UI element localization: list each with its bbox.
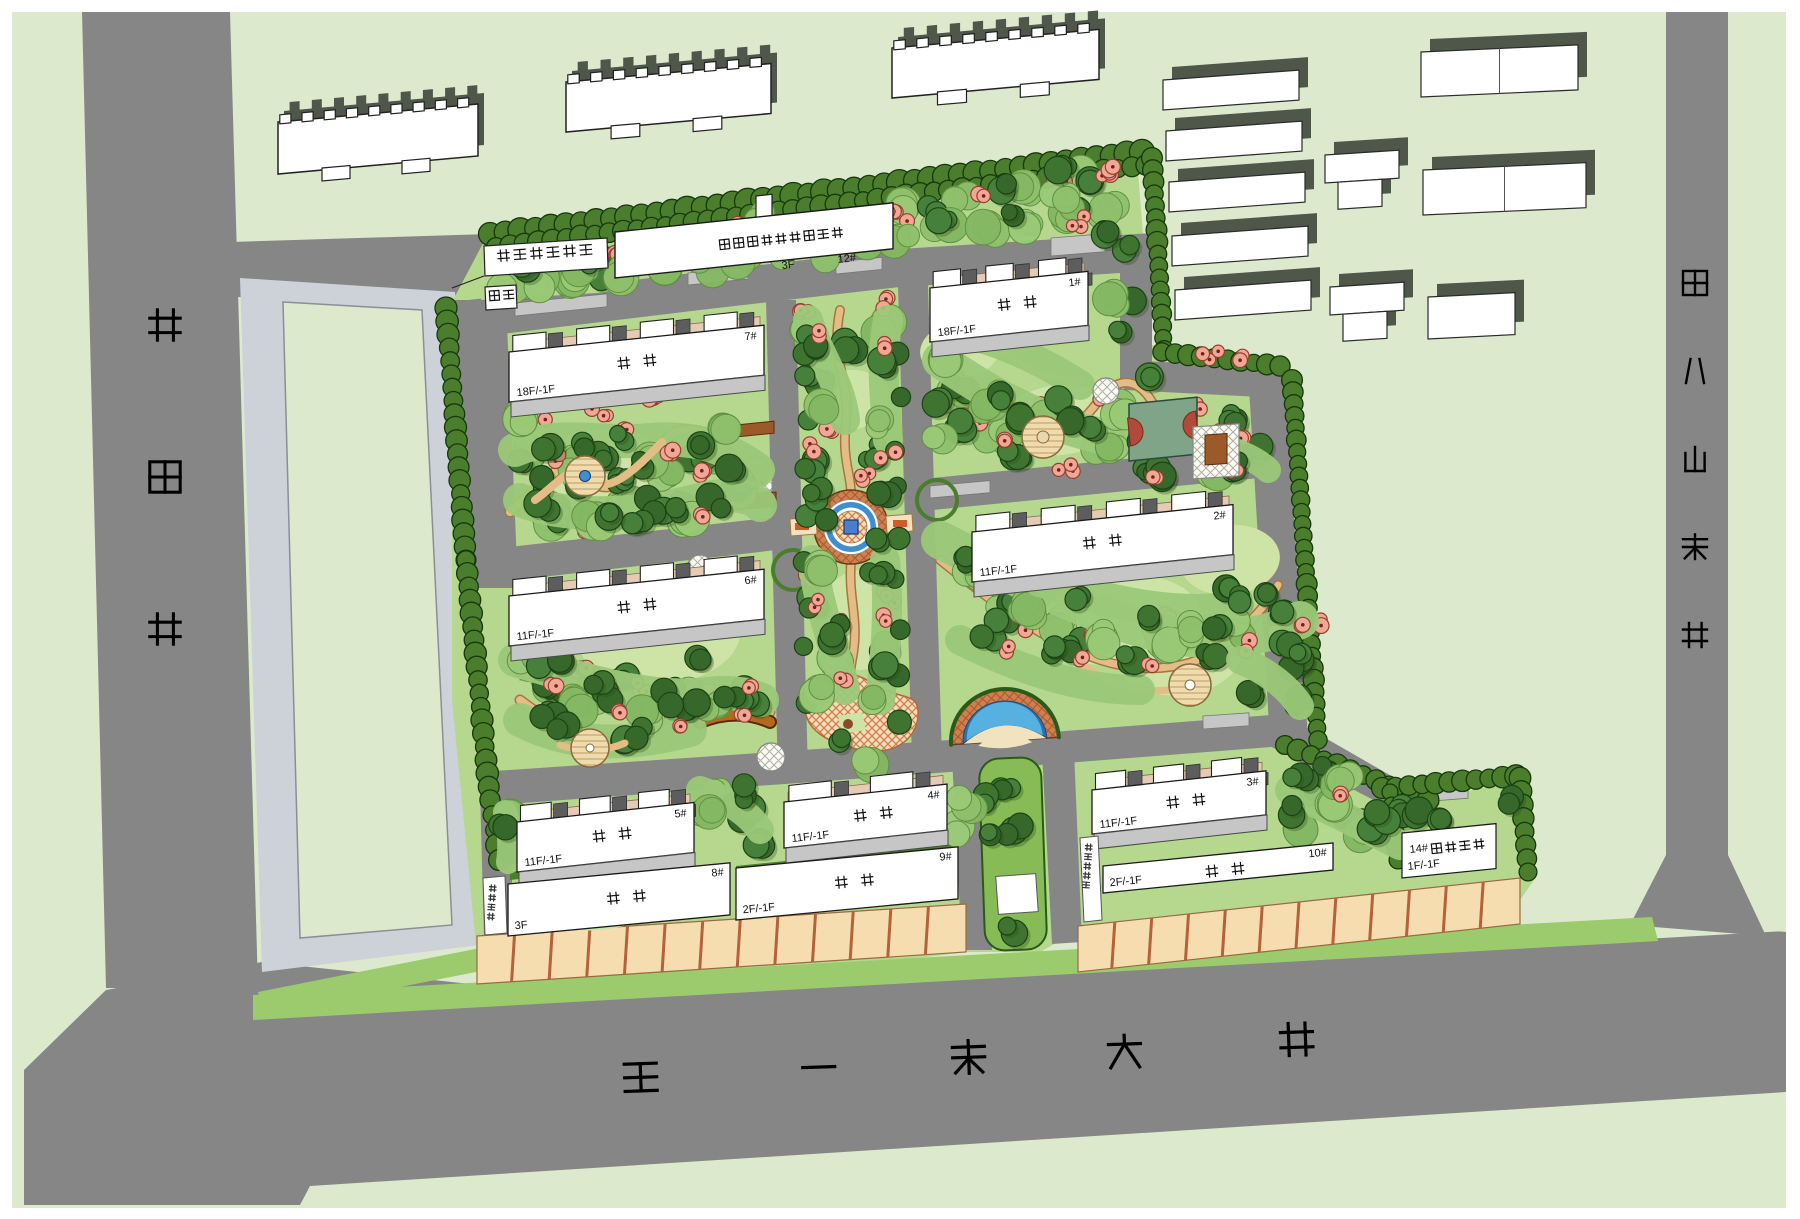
svg-text:3F: 3F <box>781 259 795 272</box>
svg-text:8#: 8# <box>711 866 725 879</box>
svg-text:14#: 14# <box>1409 842 1429 856</box>
svg-text:3F: 3F <box>514 919 528 932</box>
svg-text:5#: 5# <box>674 807 688 820</box>
svg-text:6#: 6# <box>744 574 758 587</box>
svg-text:7#: 7# <box>744 330 758 343</box>
svg-text:10#: 10# <box>1308 847 1328 861</box>
svg-text:4#: 4# <box>927 789 941 802</box>
svg-text:9#: 9# <box>939 850 953 863</box>
svg-text:12#: 12# <box>837 252 857 266</box>
svg-text:2#: 2# <box>1213 509 1227 522</box>
svg-text:1#: 1# <box>1068 276 1082 289</box>
svg-text:3#: 3# <box>1246 776 1260 789</box>
